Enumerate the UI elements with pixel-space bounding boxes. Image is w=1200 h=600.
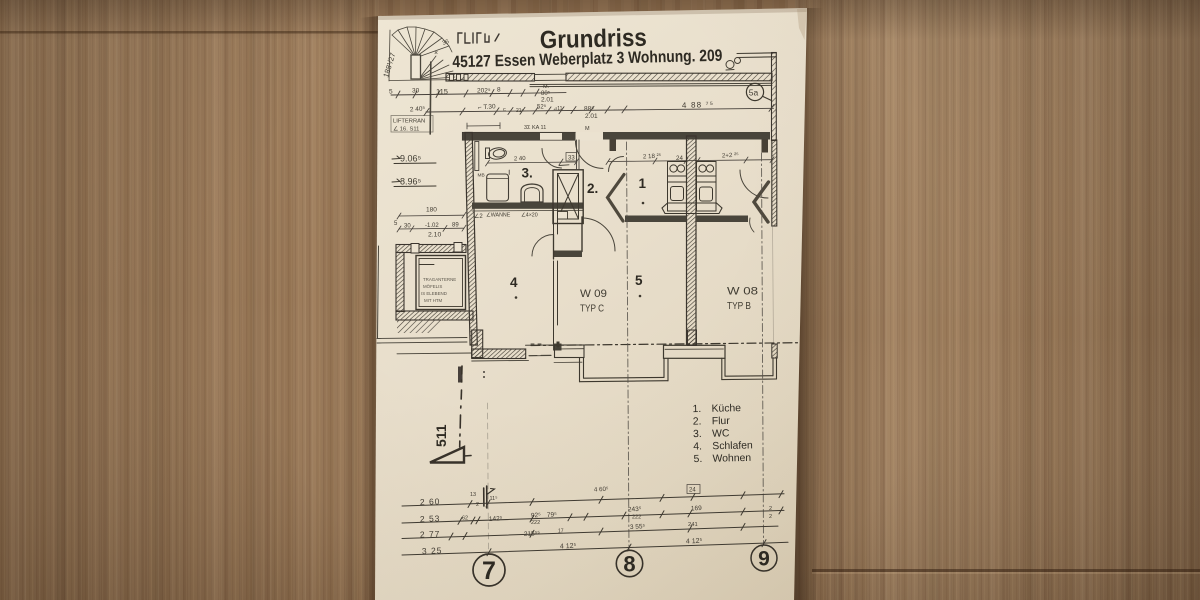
svg-text:89: 89 — [452, 223, 459, 229]
svg-text:∠WANNE: ∠WANNE — [486, 213, 511, 219]
svg-text:M: M — [585, 126, 590, 132]
svg-text:2+2 ²⁵: 2+2 ²⁵ — [722, 152, 740, 160]
svg-text:M.: M. — [543, 84, 550, 90]
svg-text:Küche: Küche — [711, 403, 741, 415]
svg-text:13: 13 — [470, 492, 476, 498]
svg-text:4: 4 — [510, 275, 518, 290]
svg-text:2.: 2. — [587, 181, 598, 196]
svg-text:4.: 4. — [693, 441, 702, 452]
svg-text:88⁵: 88⁵ — [584, 106, 594, 113]
svg-text:4 60⁵: 4 60⁵ — [594, 486, 609, 494]
svg-text:2.01: 2.01 — [585, 113, 598, 120]
svg-text:2 53: 2 53 — [420, 513, 441, 524]
svg-text:142⁵: 142⁵ — [489, 515, 503, 523]
svg-text:222: 222 — [531, 520, 540, 526]
svg-text:215⁵⁵: 215⁵⁵ — [524, 530, 541, 538]
svg-text:MÖFELIS: MÖFELIS — [423, 284, 442, 289]
svg-text:4 88 ⁷⁵: 4 88 ⁷⁵ — [682, 100, 715, 110]
svg-text:5: 5 — [635, 273, 643, 288]
svg-text:1.: 1. — [692, 404, 701, 415]
svg-text:2: 2 — [769, 506, 772, 512]
svg-text:W 08: W 08 — [727, 286, 758, 298]
svg-text:WC: WC — [712, 428, 730, 439]
svg-text:2.10: 2.10 — [428, 232, 441, 239]
svg-text:⊿11: ⊿11 — [553, 106, 563, 112]
svg-text:115: 115 — [436, 87, 448, 96]
svg-text:2 77: 2 77 — [420, 529, 441, 540]
svg-text:17: 17 — [558, 529, 564, 535]
svg-text:∠ 16. S11: ∠ 16. S11 — [393, 126, 419, 133]
svg-text:Schlafen: Schlafen — [712, 440, 753, 452]
svg-text:180: 180 — [426, 207, 437, 214]
svg-text:MB: MB — [478, 173, 485, 179]
svg-text:⌐ T.30: ⌐ T.30 — [478, 103, 497, 111]
svg-text:62: 62 — [462, 516, 468, 522]
svg-text:169: 169 — [691, 505, 703, 513]
svg-text:21⁷: 21⁷ — [516, 108, 524, 114]
svg-text:5: 5 — [389, 89, 393, 96]
svg-text:30: 30 — [404, 224, 411, 230]
svg-text:243⁵: 243⁵ — [628, 506, 642, 514]
svg-text:52⁵: 52⁵ — [537, 104, 547, 111]
svg-text:9: 9 — [758, 548, 770, 571]
svg-text:1: 1 — [639, 176, 647, 191]
svg-text:3.: 3. — [693, 429, 702, 440]
svg-text:5a: 5a — [749, 88, 759, 98]
svg-text:MIT HTM: MIT HTM — [424, 298, 443, 303]
svg-text:W 09: W 09 — [580, 288, 607, 300]
svg-text:×: × — [434, 50, 438, 57]
svg-text:3 25: 3 25 — [422, 545, 443, 556]
svg-text:2 18 ²⁵: 2 18 ²⁵ — [643, 153, 662, 161]
svg-text:241: 241 — [688, 522, 698, 528]
svg-text:79⁵: 79⁵ — [547, 511, 558, 519]
svg-text:4 12⁵: 4 12⁵ — [560, 543, 577, 551]
svg-text:-1.02: -1.02 — [425, 223, 439, 229]
svg-text:511: 511 — [433, 424, 449, 447]
svg-text:8.96⁵: 8.96⁵ — [400, 177, 422, 187]
svg-text:2: 2 — [476, 502, 479, 508]
svg-text:c: c — [503, 107, 506, 113]
svg-text:2.: 2. — [693, 416, 702, 427]
svg-text:2 40: 2 40 — [514, 156, 527, 163]
svg-text:5.: 5. — [694, 454, 703, 465]
svg-text:8: 8 — [623, 552, 635, 577]
svg-text:11⁵: 11⁵ — [490, 495, 498, 502]
svg-text:33: 33 — [568, 156, 575, 162]
svg-text:3Σ KA 11: 3Σ KA 11 — [524, 125, 546, 131]
svg-text:Wohnen: Wohnen — [713, 453, 752, 465]
svg-text:2 40⁵: 2 40⁵ — [410, 105, 426, 113]
svg-text:24: 24 — [689, 488, 696, 494]
svg-text:8: 8 — [497, 87, 501, 94]
svg-text:2 60: 2 60 — [420, 496, 441, 507]
svg-text:TRAGANTERNE: TRAGANTERNE — [423, 277, 456, 282]
svg-text:Flur: Flur — [712, 416, 731, 427]
svg-text:9.06⁵: 9.06⁵ — [400, 154, 422, 164]
svg-text:24: 24 — [676, 155, 683, 162]
svg-text:2: 2 — [769, 514, 772, 520]
svg-text:∠4×20: ∠4×20 — [521, 212, 538, 218]
svg-text:222: 222 — [632, 515, 641, 521]
svg-text:TYP C: TYP C — [580, 303, 604, 315]
svg-text:202⁵: 202⁵ — [477, 88, 491, 95]
svg-text:92⁵: 92⁵ — [531, 512, 542, 520]
svg-text:4 12⁵: 4 12⁵ — [686, 538, 703, 546]
svg-text:∠2: ∠2 — [474, 213, 483, 220]
svg-text:7: 7 — [482, 557, 496, 585]
svg-text:2.01: 2.01 — [541, 97, 554, 104]
svg-text:3.: 3. — [522, 166, 533, 181]
svg-text:TYP B: TYP B — [727, 300, 751, 312]
svg-text:30: 30 — [412, 88, 420, 95]
svg-text:IS ELEBEND: IS ELEBEND — [421, 291, 447, 296]
svg-text:3 55⁵: 3 55⁵ — [630, 523, 646, 531]
svg-text:LIFTERRAN: LIFTERRAN — [393, 119, 425, 125]
